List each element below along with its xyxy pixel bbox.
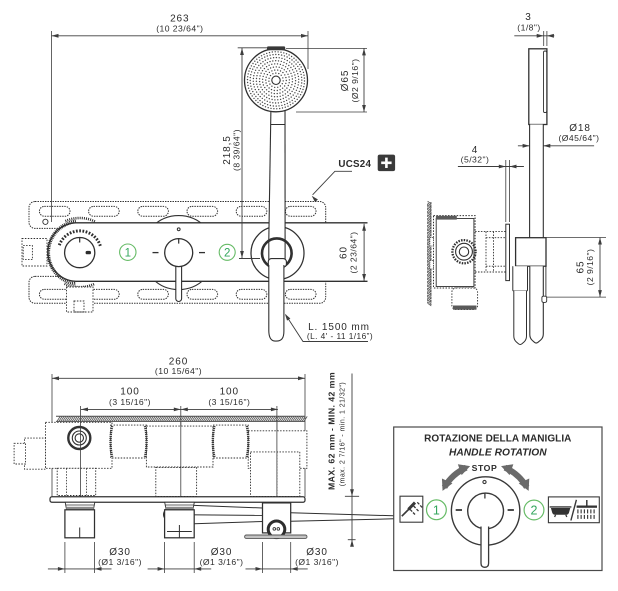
svg-text:(5/32"): (5/32") xyxy=(461,155,490,165)
svg-text:MAX. 62 mm - MIN. 42 mm: MAX. 62 mm - MIN. 42 mm xyxy=(327,372,337,490)
svg-text:(2 23/64"): (2 23/64") xyxy=(349,232,359,274)
svg-text:UCS24: UCS24 xyxy=(338,159,371,170)
svg-text:(max. 2 7/16" - min. 1 21/32"): (max. 2 7/16" - min. 1 21/32") xyxy=(340,382,347,486)
svg-text:1: 1 xyxy=(125,247,131,259)
svg-text:(3 15/16"): (3 15/16") xyxy=(109,397,151,407)
svg-text:HANDLE ROTATION: HANDLE ROTATION xyxy=(449,448,547,459)
svg-text:(2 9/16"): (2 9/16") xyxy=(585,249,595,286)
svg-text:2: 2 xyxy=(224,248,230,260)
svg-text:1: 1 xyxy=(433,504,440,518)
svg-text:(Ø1 3/16"): (Ø1 3/16") xyxy=(98,557,142,567)
svg-text:(10 23/64"): (10 23/64") xyxy=(156,23,203,33)
svg-text:100: 100 xyxy=(220,386,239,397)
svg-text:100: 100 xyxy=(120,386,139,397)
svg-text:(L. 4' - 11 1/16”): (L. 4' - 11 1/16”) xyxy=(307,331,373,341)
svg-text:(Ø1 3/16"): (Ø1 3/16") xyxy=(295,557,339,567)
svg-text:2: 2 xyxy=(531,504,538,518)
svg-text:ROTAZIONE DELLA MANIGLIA: ROTAZIONE DELLA MANIGLIA xyxy=(424,434,571,445)
svg-text:3: 3 xyxy=(525,12,531,23)
svg-text:(8 39/64"): (8 39/64") xyxy=(232,129,242,171)
svg-text:STOP: STOP xyxy=(472,463,498,473)
svg-text:(Ø1 3/16"): (Ø1 3/16") xyxy=(200,557,244,567)
svg-text:(Ø45/64"): (Ø45/64") xyxy=(558,133,599,143)
svg-text:(Ø2 9/16"): (Ø2 9/16") xyxy=(350,59,360,103)
svg-text:(3 15/16"): (3 15/16") xyxy=(208,397,250,407)
svg-text:(1/8"): (1/8") xyxy=(517,23,540,33)
svg-text:(10 15/64"): (10 15/64") xyxy=(155,366,202,376)
